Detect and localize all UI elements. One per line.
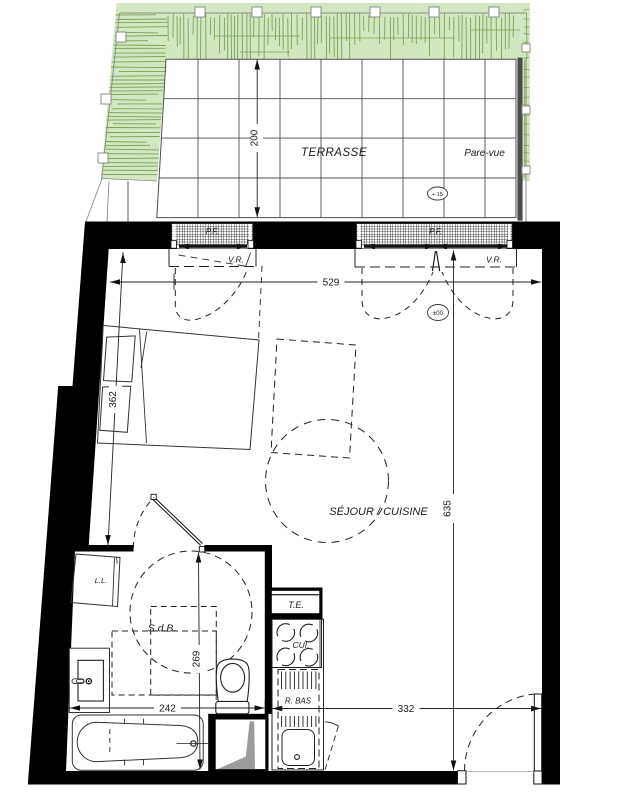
- svg-text:V.R.: V.R.: [486, 255, 502, 265]
- svg-text:T.E.: T.E.: [288, 600, 304, 610]
- svg-text:P.F.: P.F.: [429, 227, 442, 236]
- svg-text:S.d.B.: S.d.B.: [148, 623, 177, 635]
- svg-text:Pare-vue: Pare-vue: [464, 148, 505, 159]
- svg-text:±00: ±00: [433, 311, 444, 317]
- svg-text:P.F.: P.F.: [206, 227, 219, 236]
- svg-text:269: 269: [192, 650, 203, 667]
- svg-text:CUI.: CUI.: [293, 640, 310, 650]
- svg-text:TERRASSE: TERRASSE: [301, 147, 367, 159]
- svg-text:242: 242: [159, 704, 176, 715]
- svg-text:SÉJOUR / CUISINE: SÉJOUR / CUISINE: [329, 505, 428, 518]
- svg-text:362: 362: [108, 391, 119, 408]
- svg-text:200: 200: [250, 129, 261, 146]
- svg-text:R. BAS: R. BAS: [285, 697, 312, 706]
- svg-text:635: 635: [443, 500, 454, 517]
- svg-text:+ 15: + 15: [432, 192, 443, 198]
- svg-text:L.L.: L.L.: [95, 576, 108, 585]
- svg-text:529: 529: [323, 278, 340, 289]
- svg-text:332: 332: [398, 704, 415, 715]
- svg-text:V.R.: V.R.: [228, 255, 244, 265]
